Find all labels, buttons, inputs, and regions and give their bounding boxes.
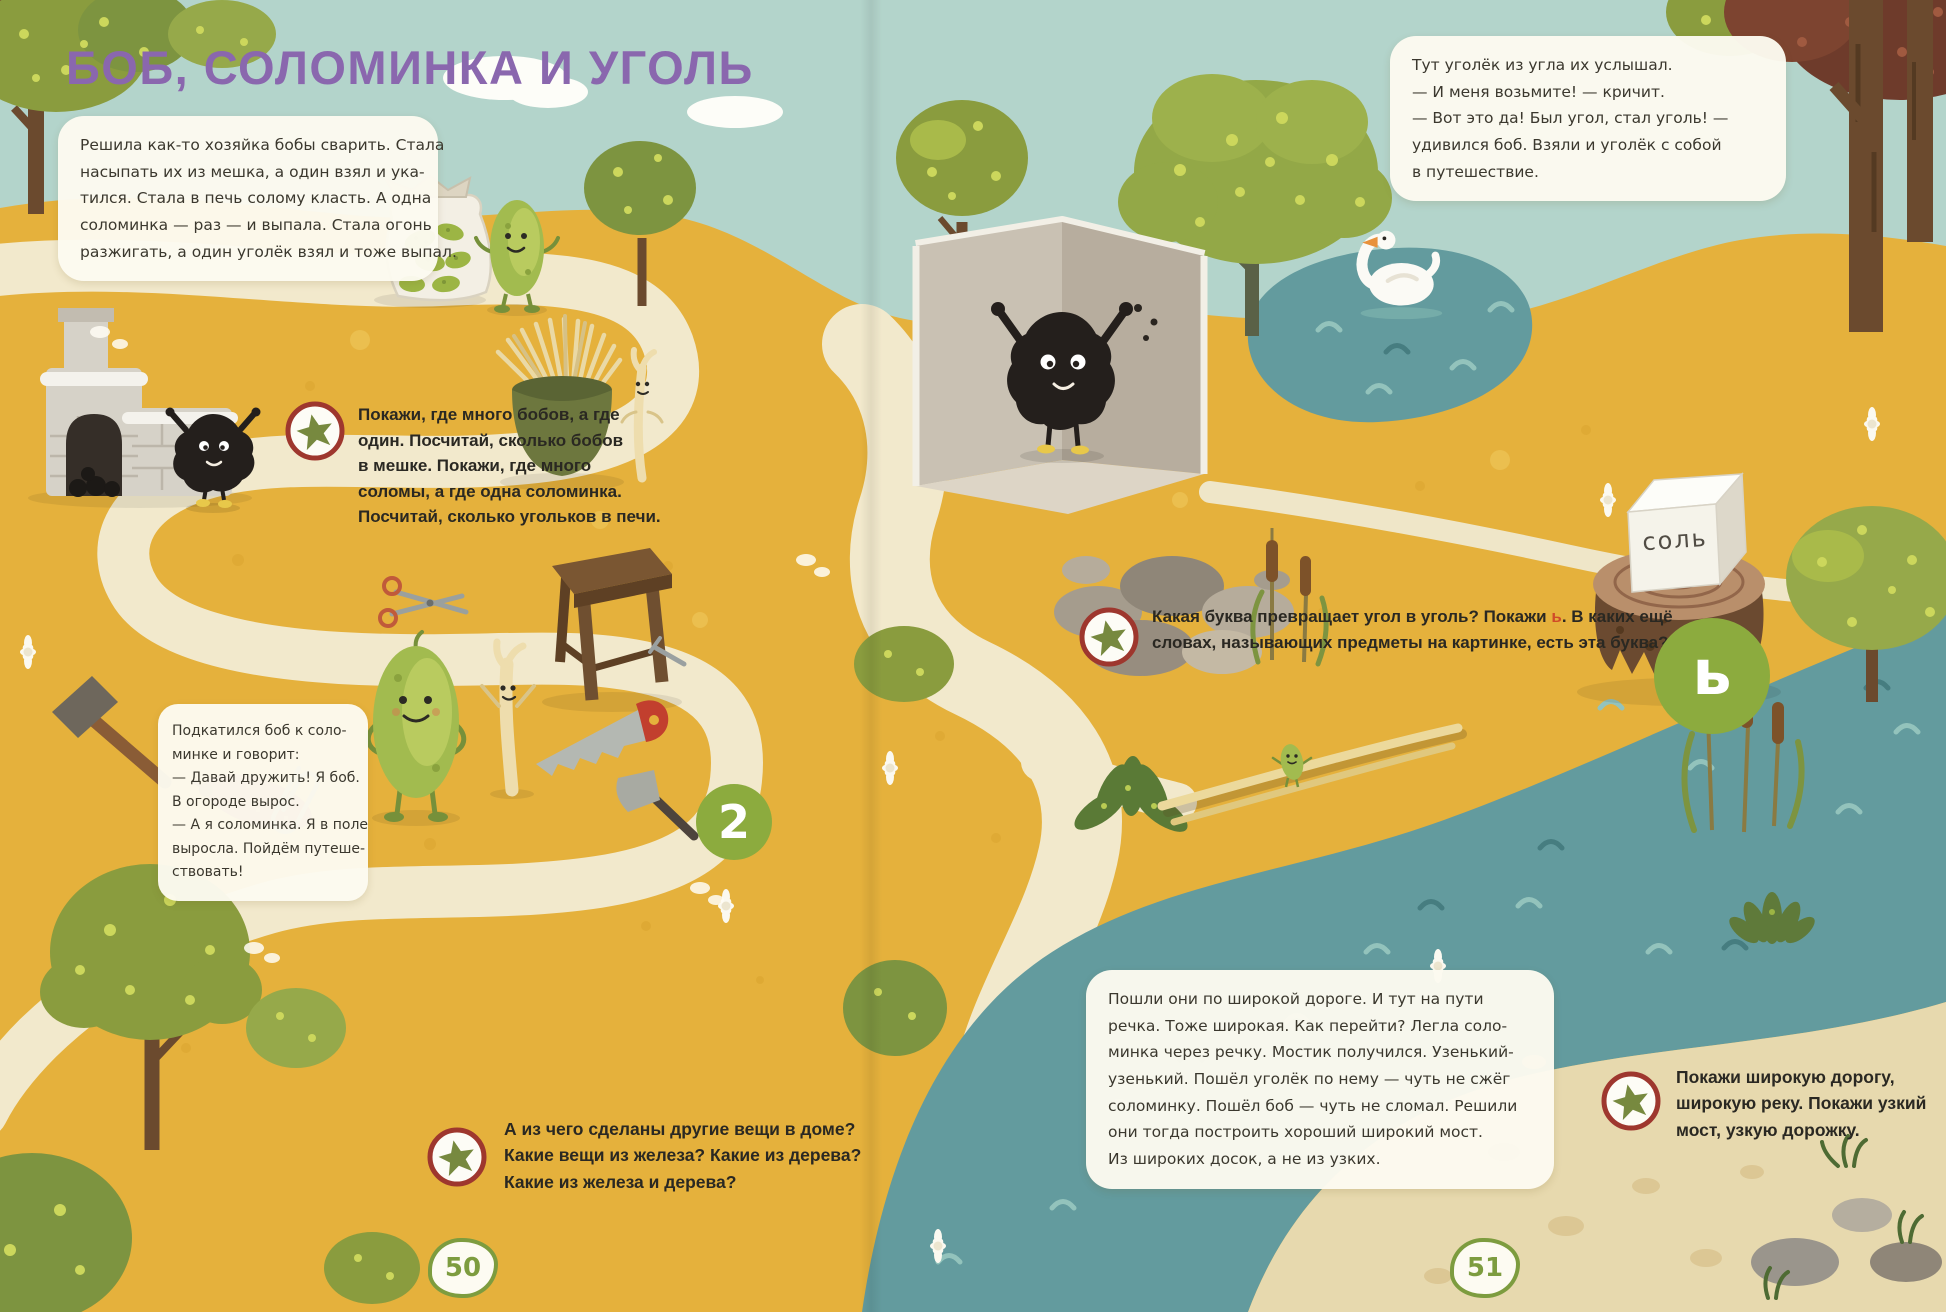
task-star-icon — [426, 1126, 488, 1188]
task-star-icon — [1078, 606, 1140, 668]
number-badge: 2 — [696, 784, 772, 860]
task-letter-before: Какая буква превращает угол в уголь? Пок… — [1152, 607, 1551, 626]
soft-sign-badge: ь — [1654, 618, 1770, 734]
task-text-count: Покажи, где много бобов, а где один. Пос… — [358, 402, 661, 530]
bush — [246, 988, 346, 1068]
page-fold — [860, 0, 882, 1312]
page-title: БОБ, СОЛОМИНКА И УГОЛЬ — [66, 40, 754, 95]
task-letter-char: ь — [1551, 607, 1561, 626]
bush — [324, 1232, 420, 1304]
speech-bubble: Подкатился боб к соло- минке и говорит: … — [158, 704, 368, 901]
story-text-coal: Тут уголёк из угла их услышал. — И меня … — [1390, 36, 1786, 201]
story-text-intro: Решила как-то хозяйка бобы сварить. Стал… — [58, 116, 438, 281]
task-star-icon — [284, 400, 346, 462]
bush — [843, 960, 947, 1056]
book-spread: БОБ, СОЛОМИНКА И УГОЛЬ Решила как-то хоз… — [0, 0, 1946, 1312]
task-text-materials: А из чего сделаны другие вещи в доме? Ка… — [504, 1116, 861, 1195]
task-text-wide: Покажи широкую дорогу, широкую реку. Пок… — [1676, 1064, 1926, 1143]
task-star-icon — [1600, 1070, 1662, 1132]
task-text-letter: Какая буква превращает угол в уголь? Пок… — [1152, 604, 1673, 657]
story-text-river: Пошли они по широкой дороге. И тут на пу… — [1086, 970, 1554, 1189]
